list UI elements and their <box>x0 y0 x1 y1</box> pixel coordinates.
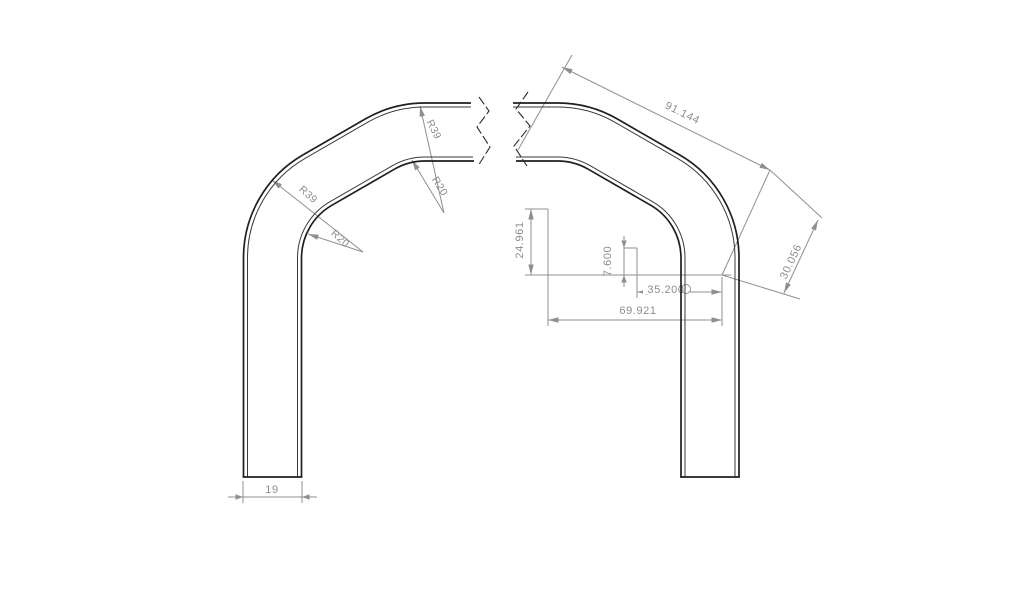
drawing-canvas: 91.144 30.056 24.961 7.600 35.200 69.921… <box>0 0 1023 603</box>
tube-left-inner-bore-line <box>298 157 474 477</box>
extension-line-91144-right <box>770 170 822 218</box>
arrowhead <box>621 241 626 249</box>
tube-right-half <box>513 103 740 477</box>
tube-bend-engineering-drawing: 91.144 30.056 24.961 7.600 35.200 69.921… <box>0 0 1023 603</box>
dim-text-slant-offset: 30.056 <box>778 242 805 281</box>
tube-left-half <box>243 103 474 477</box>
tube-left-outer-bore-line <box>248 107 472 477</box>
dim-text-vertical-large: 24.961 <box>514 221 526 258</box>
arrowhead <box>236 494 244 499</box>
arrowhead <box>302 494 310 499</box>
tube-right-inner-silhouette <box>516 161 681 477</box>
tube-left-inner-silhouette <box>302 161 475 477</box>
radius-inner-upper-label: R20 <box>429 175 450 199</box>
tube-right-outer-silhouette <box>513 103 739 477</box>
dim-text-horiz-outer: 69.921 <box>619 305 656 317</box>
dim-text-leg-width: 19 <box>265 484 278 496</box>
dim-line-slant-length <box>562 67 770 170</box>
break-line-left <box>477 97 490 166</box>
tube-right-inner-bore-line <box>516 157 685 477</box>
dim-text-vertical-small: 7.600 <box>602 246 614 277</box>
extension-line-69921-left <box>525 209 548 326</box>
dim-text-horiz-inner: 35.200 <box>647 284 684 296</box>
tube-left-outer-silhouette <box>243 103 471 477</box>
arrowhead <box>621 275 626 283</box>
dim-text-slant-length: 91.144 <box>663 100 702 127</box>
dimension-layer: 91.144 30.056 24.961 7.600 35.200 69.921… <box>228 55 822 503</box>
